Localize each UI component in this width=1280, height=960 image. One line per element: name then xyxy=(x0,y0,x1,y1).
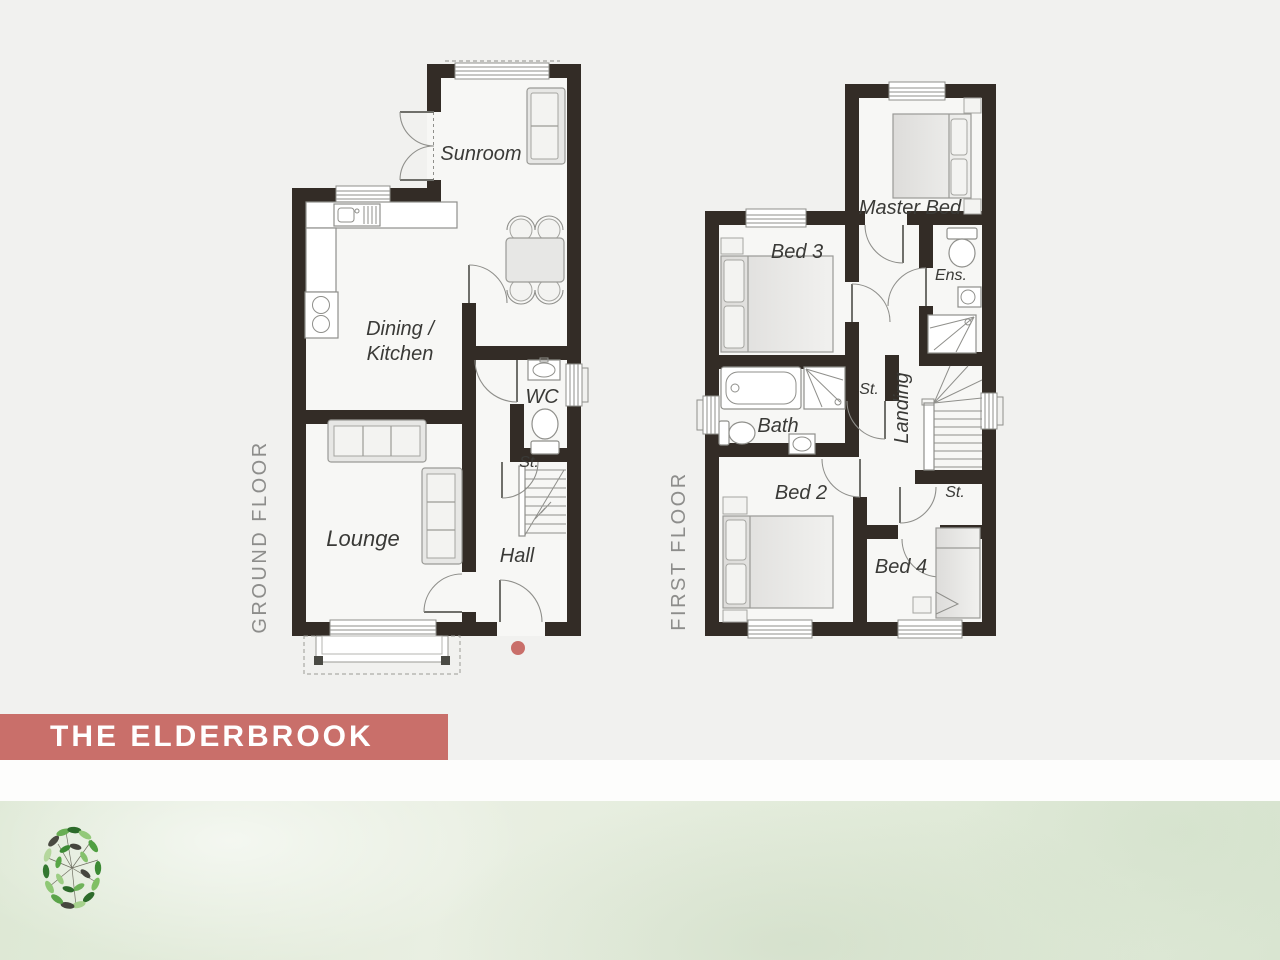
lounge-sofa-small xyxy=(422,468,462,564)
bath-basin xyxy=(789,434,815,454)
bath-shower xyxy=(804,367,845,409)
first-floor-title: FIRST FLOOR xyxy=(668,471,690,630)
bed3-window xyxy=(746,209,806,227)
house-type-name: THE ELDERBROOK xyxy=(0,720,374,754)
bathtub xyxy=(721,367,801,409)
divider-strip xyxy=(0,760,1280,801)
lounge-sofa-large xyxy=(328,420,426,462)
label-dining-2: Kitchen xyxy=(367,343,434,365)
master-window xyxy=(889,82,945,100)
dining-table xyxy=(506,216,564,304)
label-master-bed: Master Bed xyxy=(859,197,962,219)
label-store1: St. xyxy=(859,381,879,398)
ensuite-basin xyxy=(958,287,981,307)
label-dining-1: Dining / xyxy=(366,318,436,340)
page: Sunroom Dining / Kitchen WC St. Lounge H… xyxy=(0,0,1280,960)
landing-window xyxy=(981,393,1003,429)
footer-band: HOBART HALL COMBER ROAD, DUNDONALD AT MI… xyxy=(0,801,1280,960)
label-hall: Hall xyxy=(500,545,535,567)
ensuite-toilet xyxy=(947,228,977,267)
wc-toilet xyxy=(531,409,559,454)
label-ground-store: St. xyxy=(519,454,539,471)
tree-logo xyxy=(36,820,108,920)
kitchen-hob xyxy=(305,292,338,338)
wc-window xyxy=(566,364,588,406)
first-floor-plan: Master Bed Bed 3 Ens. Bath St. Landing B… xyxy=(655,50,1015,650)
ground-floor-plan: Sunroom Dining / Kitchen WC St. Lounge H… xyxy=(240,50,610,690)
label-bed4: Bed 4 xyxy=(875,556,927,578)
label-sunroom: Sunroom xyxy=(440,143,521,165)
entrance-marker-dot xyxy=(511,641,525,655)
ensuite-shower xyxy=(928,315,976,353)
label-bath: Bath xyxy=(757,415,798,437)
bed2-window xyxy=(748,620,812,638)
bed2-furniture xyxy=(723,497,833,622)
bay-window xyxy=(304,636,460,674)
house-type-banner: THE ELDERBROOK xyxy=(0,714,448,760)
label-lounge: Lounge xyxy=(326,526,399,551)
kitchen-sink xyxy=(334,204,380,226)
label-landing: Landing xyxy=(891,372,913,443)
kitchen-window xyxy=(336,186,390,204)
wc-basin xyxy=(528,358,560,380)
label-bed3: Bed 3 xyxy=(771,241,823,263)
label-bed2: Bed 2 xyxy=(775,482,827,504)
bed4-window xyxy=(898,620,962,638)
label-store2: St. xyxy=(945,484,965,501)
sunroom-window xyxy=(445,61,560,79)
bath-toilet xyxy=(719,421,755,445)
lounge-window xyxy=(330,620,436,638)
label-ensuite: Ens. xyxy=(935,267,967,284)
sunroom-sofa xyxy=(527,88,565,164)
bath-window xyxy=(697,396,719,434)
ground-floor-title: GROUND FLOOR xyxy=(249,440,271,633)
label-wc: WC xyxy=(525,386,559,408)
